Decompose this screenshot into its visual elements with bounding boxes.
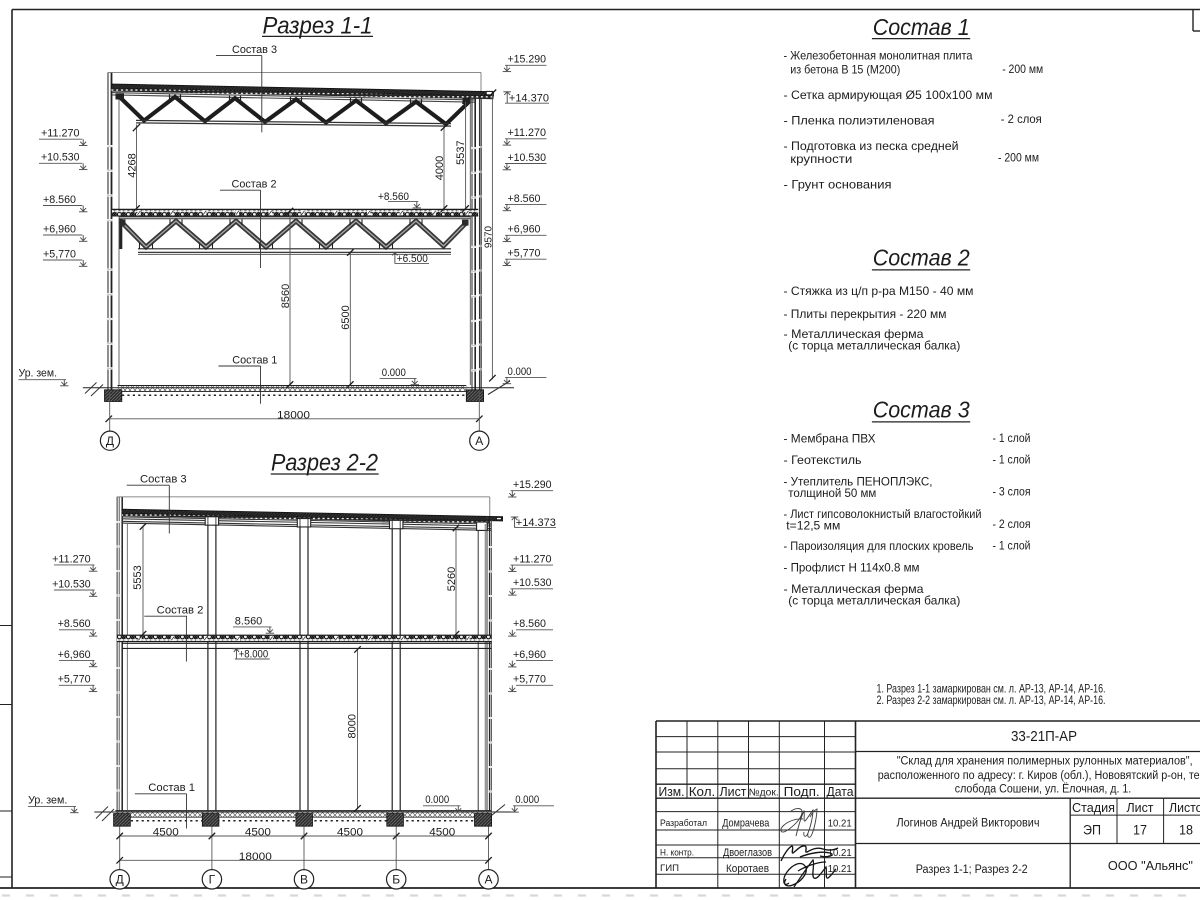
svg-text:10.21: 10.21 xyxy=(828,864,852,875)
svg-text:6500: 6500 xyxy=(340,305,352,329)
svg-text:+8.560: +8.560 xyxy=(43,194,76,206)
svg-text:Изм.: Изм. xyxy=(659,784,685,799)
svg-text:Логинов Андрей Викторович: Логинов Андрей Викторович xyxy=(897,818,1040,830)
svg-text:Состав 1: Состав 1 xyxy=(232,354,277,366)
svg-text:+6.500: +6.500 xyxy=(397,253,428,265)
svg-text:- Железобетонная монолитная п: - Железобетонная монолитная плита xyxy=(784,49,973,63)
svg-text:Двоеглазов: Двоеглазов xyxy=(723,847,772,859)
svg-text:- 1 слой: - 1 слой xyxy=(993,538,1031,552)
svg-text:толщиной 50 мм: толщиной 50 мм xyxy=(788,486,876,500)
svg-text:ГИП: ГИП xyxy=(660,863,679,873)
svg-text:+8.560: +8.560 xyxy=(58,618,91,630)
svg-text:33-21П-АР: 33-21П-АР xyxy=(1011,728,1077,745)
svg-text:0.000: 0.000 xyxy=(382,367,406,379)
svg-text:+5,770: +5,770 xyxy=(508,248,541,260)
svg-text:+6,960: +6,960 xyxy=(58,649,91,661)
svg-text:Разрез 1-1; Разрез 2-2: Разрез 1-1; Разрез 2-2 xyxy=(916,864,1028,876)
svg-text:+15.290: +15.290 xyxy=(513,479,552,491)
svg-text:Состав 1: Состав 1 xyxy=(148,782,195,794)
svg-text:18000: 18000 xyxy=(239,851,272,863)
svg-text:+14.370: +14.370 xyxy=(509,93,549,105)
svg-text:2. Разрез 2-2 замаркирован см.: 2. Разрез 2-2 замаркирован см. л. АР-13,… xyxy=(877,693,1106,707)
svg-text:Ур. зем.: Ур. зем. xyxy=(19,368,58,380)
svg-text:+11.270: +11.270 xyxy=(41,128,80,140)
svg-text:А: А xyxy=(484,873,492,887)
svg-text:Состав 2: Состав 2 xyxy=(873,245,970,271)
svg-text:Г: Г xyxy=(209,873,216,887)
svg-text:0.000: 0.000 xyxy=(515,794,539,806)
svg-text:17: 17 xyxy=(1133,822,1147,837)
svg-text:+11.270: +11.270 xyxy=(52,553,91,565)
svg-text:"Склад для хранения полимерных: "Склад для хранения полимерных рулонных … xyxy=(897,756,1193,768)
svg-text:Разработал: Разработал xyxy=(660,818,707,828)
svg-text:0.000: 0.000 xyxy=(508,366,532,378)
svg-text:- Геотекстиль: - Геотекстиль xyxy=(784,453,862,467)
svg-text:+11.270: +11.270 xyxy=(508,127,547,139)
svg-text:+6,960: +6,960 xyxy=(513,649,546,661)
svg-text:10.21: 10.21 xyxy=(828,818,852,829)
svg-text:18000: 18000 xyxy=(277,409,310,421)
svg-text:В: В xyxy=(300,873,308,887)
svg-text:- 2 слоя: - 2 слоя xyxy=(993,517,1031,531)
svg-text:+8.560: +8.560 xyxy=(513,618,546,630)
svg-text:Кол.: Кол. xyxy=(689,784,716,799)
svg-text:- 3 слоя: - 3 слоя xyxy=(993,484,1031,498)
svg-text:Разрез 1-1: Разрез 1-1 xyxy=(263,13,373,40)
svg-text:ООО "Альянс": ООО "Альянс" xyxy=(1108,859,1193,873)
svg-text:- Плиты перекрытия - 220 мм: - Плиты перекрытия - 220 мм xyxy=(784,307,947,321)
svg-text:18: 18 xyxy=(1179,822,1193,837)
svg-text:+8.000: +8.000 xyxy=(239,648,269,660)
svg-text:t=12,5 мм: t=12,5 мм xyxy=(786,519,840,533)
svg-text:4500: 4500 xyxy=(337,827,363,839)
svg-text:Состав 3: Состав 3 xyxy=(140,474,187,486)
svg-text:- 200 мм: - 200 мм xyxy=(1002,62,1043,76)
svg-text:5260: 5260 xyxy=(446,567,458,591)
svg-text:- 200 мм: - 200 мм xyxy=(998,151,1039,165)
svg-text:4500: 4500 xyxy=(153,827,179,839)
svg-text:Н. контр.: Н. контр. xyxy=(660,847,694,857)
svg-text:- Пароизоляция для плоских кро: - Пароизоляция для плоских кровель xyxy=(784,539,974,553)
svg-text:8560: 8560 xyxy=(280,284,292,308)
svg-text:- 1 слой: - 1 слой xyxy=(993,452,1031,466)
svg-text:(с торца металлическая балка): (с торца металлическая балка) xyxy=(788,339,960,353)
svg-text:+8.560: +8.560 xyxy=(508,193,541,205)
svg-text:Лист: Лист xyxy=(720,784,747,799)
svg-text:Подп.: Подп. xyxy=(784,784,820,799)
svg-text:+15.290: +15.290 xyxy=(508,54,547,66)
svg-text:слобода Сошени, ул. Ёлочная, д: слобода Сошени, ул. Ёлочная, д. 1. xyxy=(955,784,1132,796)
svg-text:0.000: 0.000 xyxy=(425,794,449,806)
svg-text:Состав 2: Состав 2 xyxy=(232,179,277,191)
svg-text:из бетона В 15 (М200): из бетона В 15 (М200) xyxy=(790,63,900,77)
svg-text:№док.: №док. xyxy=(749,787,779,798)
svg-text:Домрачева: Домрачева xyxy=(722,817,770,829)
svg-text:+5,770: +5,770 xyxy=(58,674,91,686)
svg-text:+10.530: +10.530 xyxy=(52,578,91,590)
svg-text:крупности: крупности xyxy=(790,152,852,166)
svg-text:(с торца металлическая балка): (с торца металлическая балка) xyxy=(788,594,960,608)
svg-text:Состав 3: Состав 3 xyxy=(232,44,277,56)
svg-text:Б: Б xyxy=(392,873,400,887)
svg-text:Дата: Дата xyxy=(827,784,855,799)
svg-text:Д: Д xyxy=(106,434,114,448)
svg-text:- 1 слой: - 1 слой xyxy=(993,431,1031,445)
svg-text:+11.270: +11.270 xyxy=(513,554,552,566)
svg-text:+5,770: +5,770 xyxy=(513,674,546,686)
svg-text:+5,770: +5,770 xyxy=(43,248,76,260)
svg-text:+14.373: +14.373 xyxy=(516,517,556,529)
svg-text:- 2 слоя: - 2 слоя xyxy=(1001,112,1042,126)
svg-text:- Стяжка из ц/п р-ра М150 - 40: - Стяжка из ц/п р-ра М150 - 40 мм xyxy=(784,284,974,298)
svg-text:Состав 2: Состав 2 xyxy=(157,605,204,617)
svg-text:Ур. зем.: Ур. зем. xyxy=(28,795,67,807)
svg-text:5537: 5537 xyxy=(455,140,467,164)
svg-text:4500: 4500 xyxy=(429,827,455,839)
svg-text:9570: 9570 xyxy=(483,225,494,248)
svg-text:- Мембрана ПВХ: - Мембрана ПВХ xyxy=(784,432,876,446)
svg-text:ЭП: ЭП xyxy=(1083,822,1101,837)
svg-text:А: А xyxy=(475,434,483,448)
svg-text:Разрез 2-2: Разрез 2-2 xyxy=(271,450,378,477)
svg-text:- Грунт основания: - Грунт основания xyxy=(784,178,892,192)
svg-text:+10.530: +10.530 xyxy=(508,152,547,164)
svg-text:- Профлист Н 114х0.8 мм: - Профлист Н 114х0.8 мм xyxy=(784,561,920,575)
svg-text:Листов: Листов xyxy=(1169,801,1200,815)
svg-text:Состав 1: Состав 1 xyxy=(873,14,970,40)
svg-text:5553: 5553 xyxy=(132,565,144,589)
svg-text:Состав 3: Состав 3 xyxy=(873,396,970,422)
svg-text:Коротаев: Коротаев xyxy=(726,863,769,875)
svg-text:+10.530: +10.530 xyxy=(513,577,552,589)
svg-text:8000: 8000 xyxy=(347,714,359,738)
svg-text:4268: 4268 xyxy=(126,153,138,177)
svg-text:Д: Д xyxy=(116,873,124,887)
svg-text:расположенного по адресу: г. К: расположенного по адресу: г. Киров (обл.… xyxy=(878,770,1200,782)
svg-text:Стадия: Стадия xyxy=(1072,801,1115,815)
svg-text:4500: 4500 xyxy=(245,827,271,839)
svg-text:+6,960: +6,960 xyxy=(43,223,76,235)
svg-text:+6,960: +6,960 xyxy=(508,224,541,236)
svg-text:4000: 4000 xyxy=(434,156,446,180)
svg-text:8.560: 8.560 xyxy=(235,615,262,627)
svg-text:- Сетка армирующая Ø5 100х100: - Сетка армирующая Ø5 100х100 мм xyxy=(784,88,993,102)
svg-text:Лист: Лист xyxy=(1127,801,1154,815)
svg-text:- Пленка полиэтиленовая: - Пленка полиэтиленовая xyxy=(784,114,935,128)
svg-text:+10.530: +10.530 xyxy=(41,152,80,164)
